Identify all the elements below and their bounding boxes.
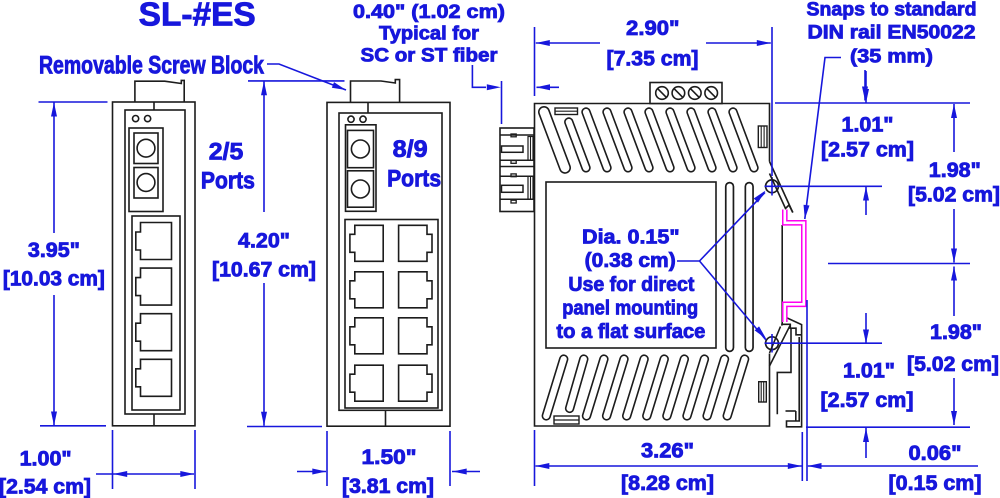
svg-text:Snaps to standard: Snaps to standard — [807, 0, 977, 21]
svg-text:2/5: 2/5 — [209, 138, 244, 165]
svg-text:to a flat surface: to a flat surface — [556, 321, 705, 343]
svg-text:4.20": 4.20" — [238, 230, 290, 253]
svg-text:DIN rail EN50022: DIN rail EN50022 — [808, 22, 976, 44]
svg-text:[8.28 cm]: [8.28 cm] — [621, 472, 714, 495]
svg-text:2.90": 2.90" — [626, 17, 680, 40]
svg-text:Typical for: Typical for — [379, 23, 479, 45]
svg-text:[2.57 cm]: [2.57 cm] — [821, 389, 914, 412]
svg-text:1.01": 1.01" — [843, 360, 895, 383]
svg-text:[5.02 cm]: [5.02 cm] — [908, 184, 1000, 207]
svg-text:[10.03 cm]: [10.03 cm] — [3, 268, 105, 291]
svg-text:3.26": 3.26" — [641, 440, 694, 463]
svg-text:[0.15 cm]: [0.15 cm] — [889, 472, 982, 495]
svg-text:[2.57 cm]: [2.57 cm] — [821, 139, 914, 162]
svg-text:1.50": 1.50" — [362, 446, 417, 469]
svg-text:SC or ST fiber: SC or ST fiber — [361, 45, 498, 67]
svg-text:1.00": 1.00" — [20, 448, 72, 471]
svg-text:(0.38 cm): (0.38 cm) — [585, 250, 676, 272]
svg-text:[2.54 cm]: [2.54 cm] — [0, 476, 91, 498]
svg-text:[7.35 cm]: [7.35 cm] — [607, 48, 699, 71]
svg-text:1.98": 1.98" — [930, 321, 982, 344]
svg-text:1.98": 1.98" — [929, 159, 981, 182]
svg-text:panel mounting: panel mounting — [562, 298, 698, 320]
svg-text:[10.67 cm]: [10.67 cm] — [212, 259, 316, 282]
svg-text:Removable Screw Block: Removable Screw Block — [39, 53, 264, 80]
svg-text:(35 mm): (35 mm) — [850, 46, 933, 68]
svg-text:[3.81 cm]: [3.81 cm] — [342, 475, 434, 498]
svg-text:Ports: Ports — [201, 168, 255, 195]
svg-text:1.01": 1.01" — [842, 114, 894, 137]
svg-text:Dia. 0.15": Dia. 0.15" — [582, 227, 680, 249]
svg-text:SL-#ES: SL-#ES — [139, 0, 256, 34]
svg-text:[5.02 cm]: [5.02 cm] — [907, 353, 999, 376]
svg-text:Ports: Ports — [387, 165, 441, 192]
svg-text:3.95": 3.95" — [28, 239, 80, 262]
svg-text:0.06": 0.06" — [909, 442, 962, 465]
svg-text:Use for direct: Use for direct — [568, 274, 694, 296]
svg-text:8/9: 8/9 — [393, 136, 428, 163]
svg-text:0.40" (1.02 cm): 0.40" (1.02 cm) — [353, 1, 505, 23]
